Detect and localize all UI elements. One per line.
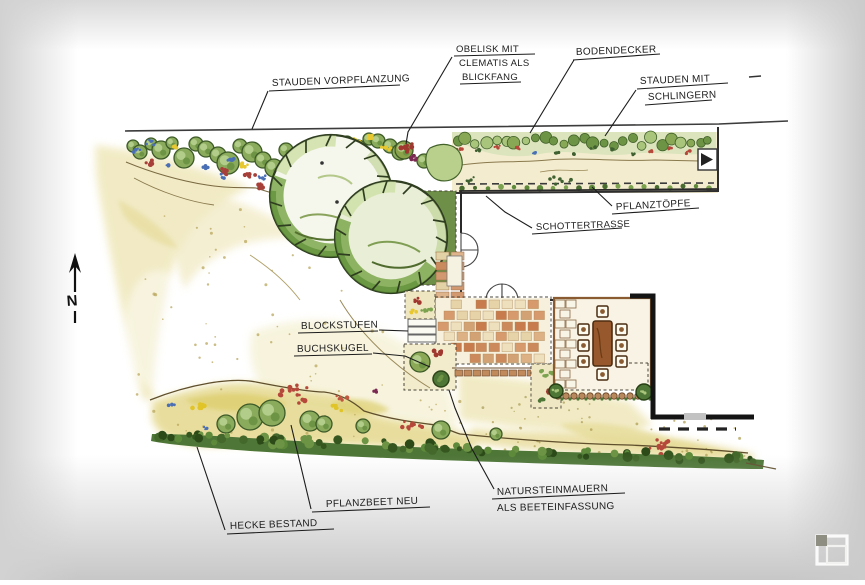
svg-text:OBELISK MIT: OBELISK MIT — [456, 44, 519, 55]
svg-text:CLEMATIS ALS: CLEMATIS ALS — [459, 58, 529, 69]
svg-text:BLOCKSTUFEN: BLOCKSTUFEN — [301, 320, 378, 332]
svg-text:N: N — [66, 292, 78, 310]
svg-text:BUCHSKUGEL: BUCHSKUGEL — [297, 343, 369, 355]
svg-text:BLICKFANG: BLICKFANG — [462, 72, 518, 83]
svg-text:ALS BEETEINFASSUNG: ALS BEETEINFASSUNG — [497, 501, 615, 514]
